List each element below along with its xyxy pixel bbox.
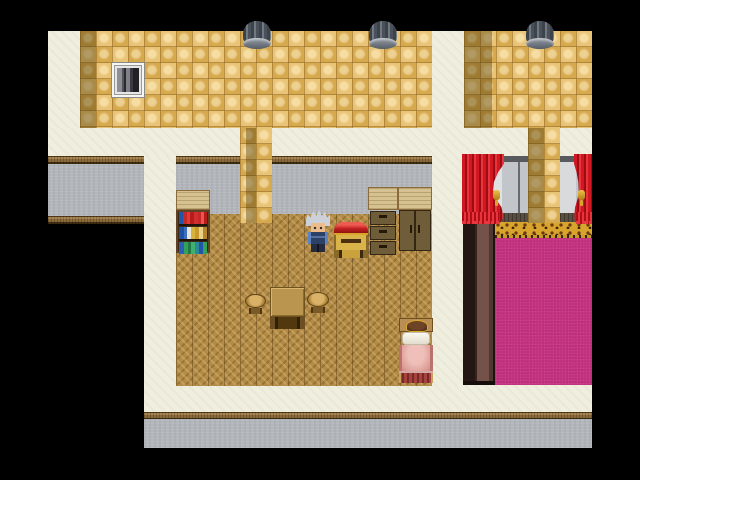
game-canvas[interactable]: [0, 0, 640, 480]
chest-body: [334, 235, 368, 250]
character-face: [311, 223, 325, 232]
wall-shadow-column-2: [464, 31, 492, 128]
character-sprite[interactable]: [306, 210, 330, 252]
tile-pillar-1: [240, 128, 272, 223]
room-wall-trim: [176, 156, 432, 164]
shelf-books-mixed: [179, 227, 207, 241]
magenta-carpet: [495, 238, 592, 385]
cream-strip-room-left: [144, 156, 176, 412]
bottom-ledge-trim: [144, 412, 592, 419]
shelf-books-red: [179, 212, 207, 226]
brown-column: [463, 218, 495, 385]
curtain-right-tieback: [578, 190, 585, 200]
cream-divider-mid: [432, 31, 464, 412]
ledge-trim-left-top: [48, 156, 144, 164]
dresser-drawer-2: [370, 226, 396, 240]
ledge-trim-left-bottom: [48, 216, 144, 224]
window-drapes: [117, 68, 139, 92]
bottom-ledge-gray: [144, 419, 592, 448]
curtain-left-tieback: [493, 190, 500, 200]
curtain-ruffle: [462, 212, 499, 224]
stool-left: [245, 294, 266, 314]
table-top: [270, 287, 305, 317]
vent-rim: [369, 38, 397, 49]
vent-rim: [243, 38, 271, 49]
wardrobe-top: [398, 187, 432, 210]
stool-seat: [245, 294, 266, 308]
stool-legs: [249, 308, 262, 314]
dresser-drawer-1: [370, 211, 396, 225]
vent-rim: [526, 38, 554, 49]
bookshelf: [176, 190, 210, 253]
chest-base: [334, 250, 368, 258]
cream-band-top: [48, 128, 592, 156]
stool-legs: [311, 307, 325, 313]
pillar-2-shadow: [528, 128, 544, 223]
stool-seat: [307, 292, 329, 307]
roof-vent-1: [243, 21, 271, 50]
bed-pillow: [402, 332, 430, 345]
cream-strip-top-left: [48, 31, 80, 128]
dresser-drawer-3: [370, 241, 396, 255]
bookshelf-top: [176, 190, 210, 210]
roof-vent-2: [369, 21, 397, 50]
wardrobe-doors: [399, 210, 431, 251]
page-background: [0, 0, 738, 510]
pillar-1-shadow: [246, 128, 256, 223]
bed-blanket: [399, 345, 433, 371]
red-chest: [334, 222, 368, 256]
bed-headboard: [399, 318, 433, 332]
wall-window: [112, 63, 144, 97]
wardrobe: [398, 187, 432, 253]
bookshelf-shelves: [176, 210, 210, 253]
character-legs: [311, 244, 325, 252]
chest-lid: [334, 222, 368, 235]
ledge-gray-left: [48, 164, 144, 216]
curtain-ruffle: [576, 212, 592, 224]
roof-vent-3: [526, 21, 554, 50]
bed: [399, 318, 433, 383]
character-body: [308, 232, 328, 244]
dresser-top: [368, 187, 398, 210]
cream-band-bottom: [144, 385, 592, 412]
dresser: [368, 187, 398, 253]
table-base: [270, 317, 305, 329]
table: [270, 287, 305, 329]
leopard-carpet-border: [495, 222, 592, 238]
stool-right: [307, 292, 329, 313]
bed-footboard: [399, 371, 433, 383]
shelf-books-blue-green: [179, 242, 207, 254]
wall-shadow-column-1: [80, 31, 96, 128]
